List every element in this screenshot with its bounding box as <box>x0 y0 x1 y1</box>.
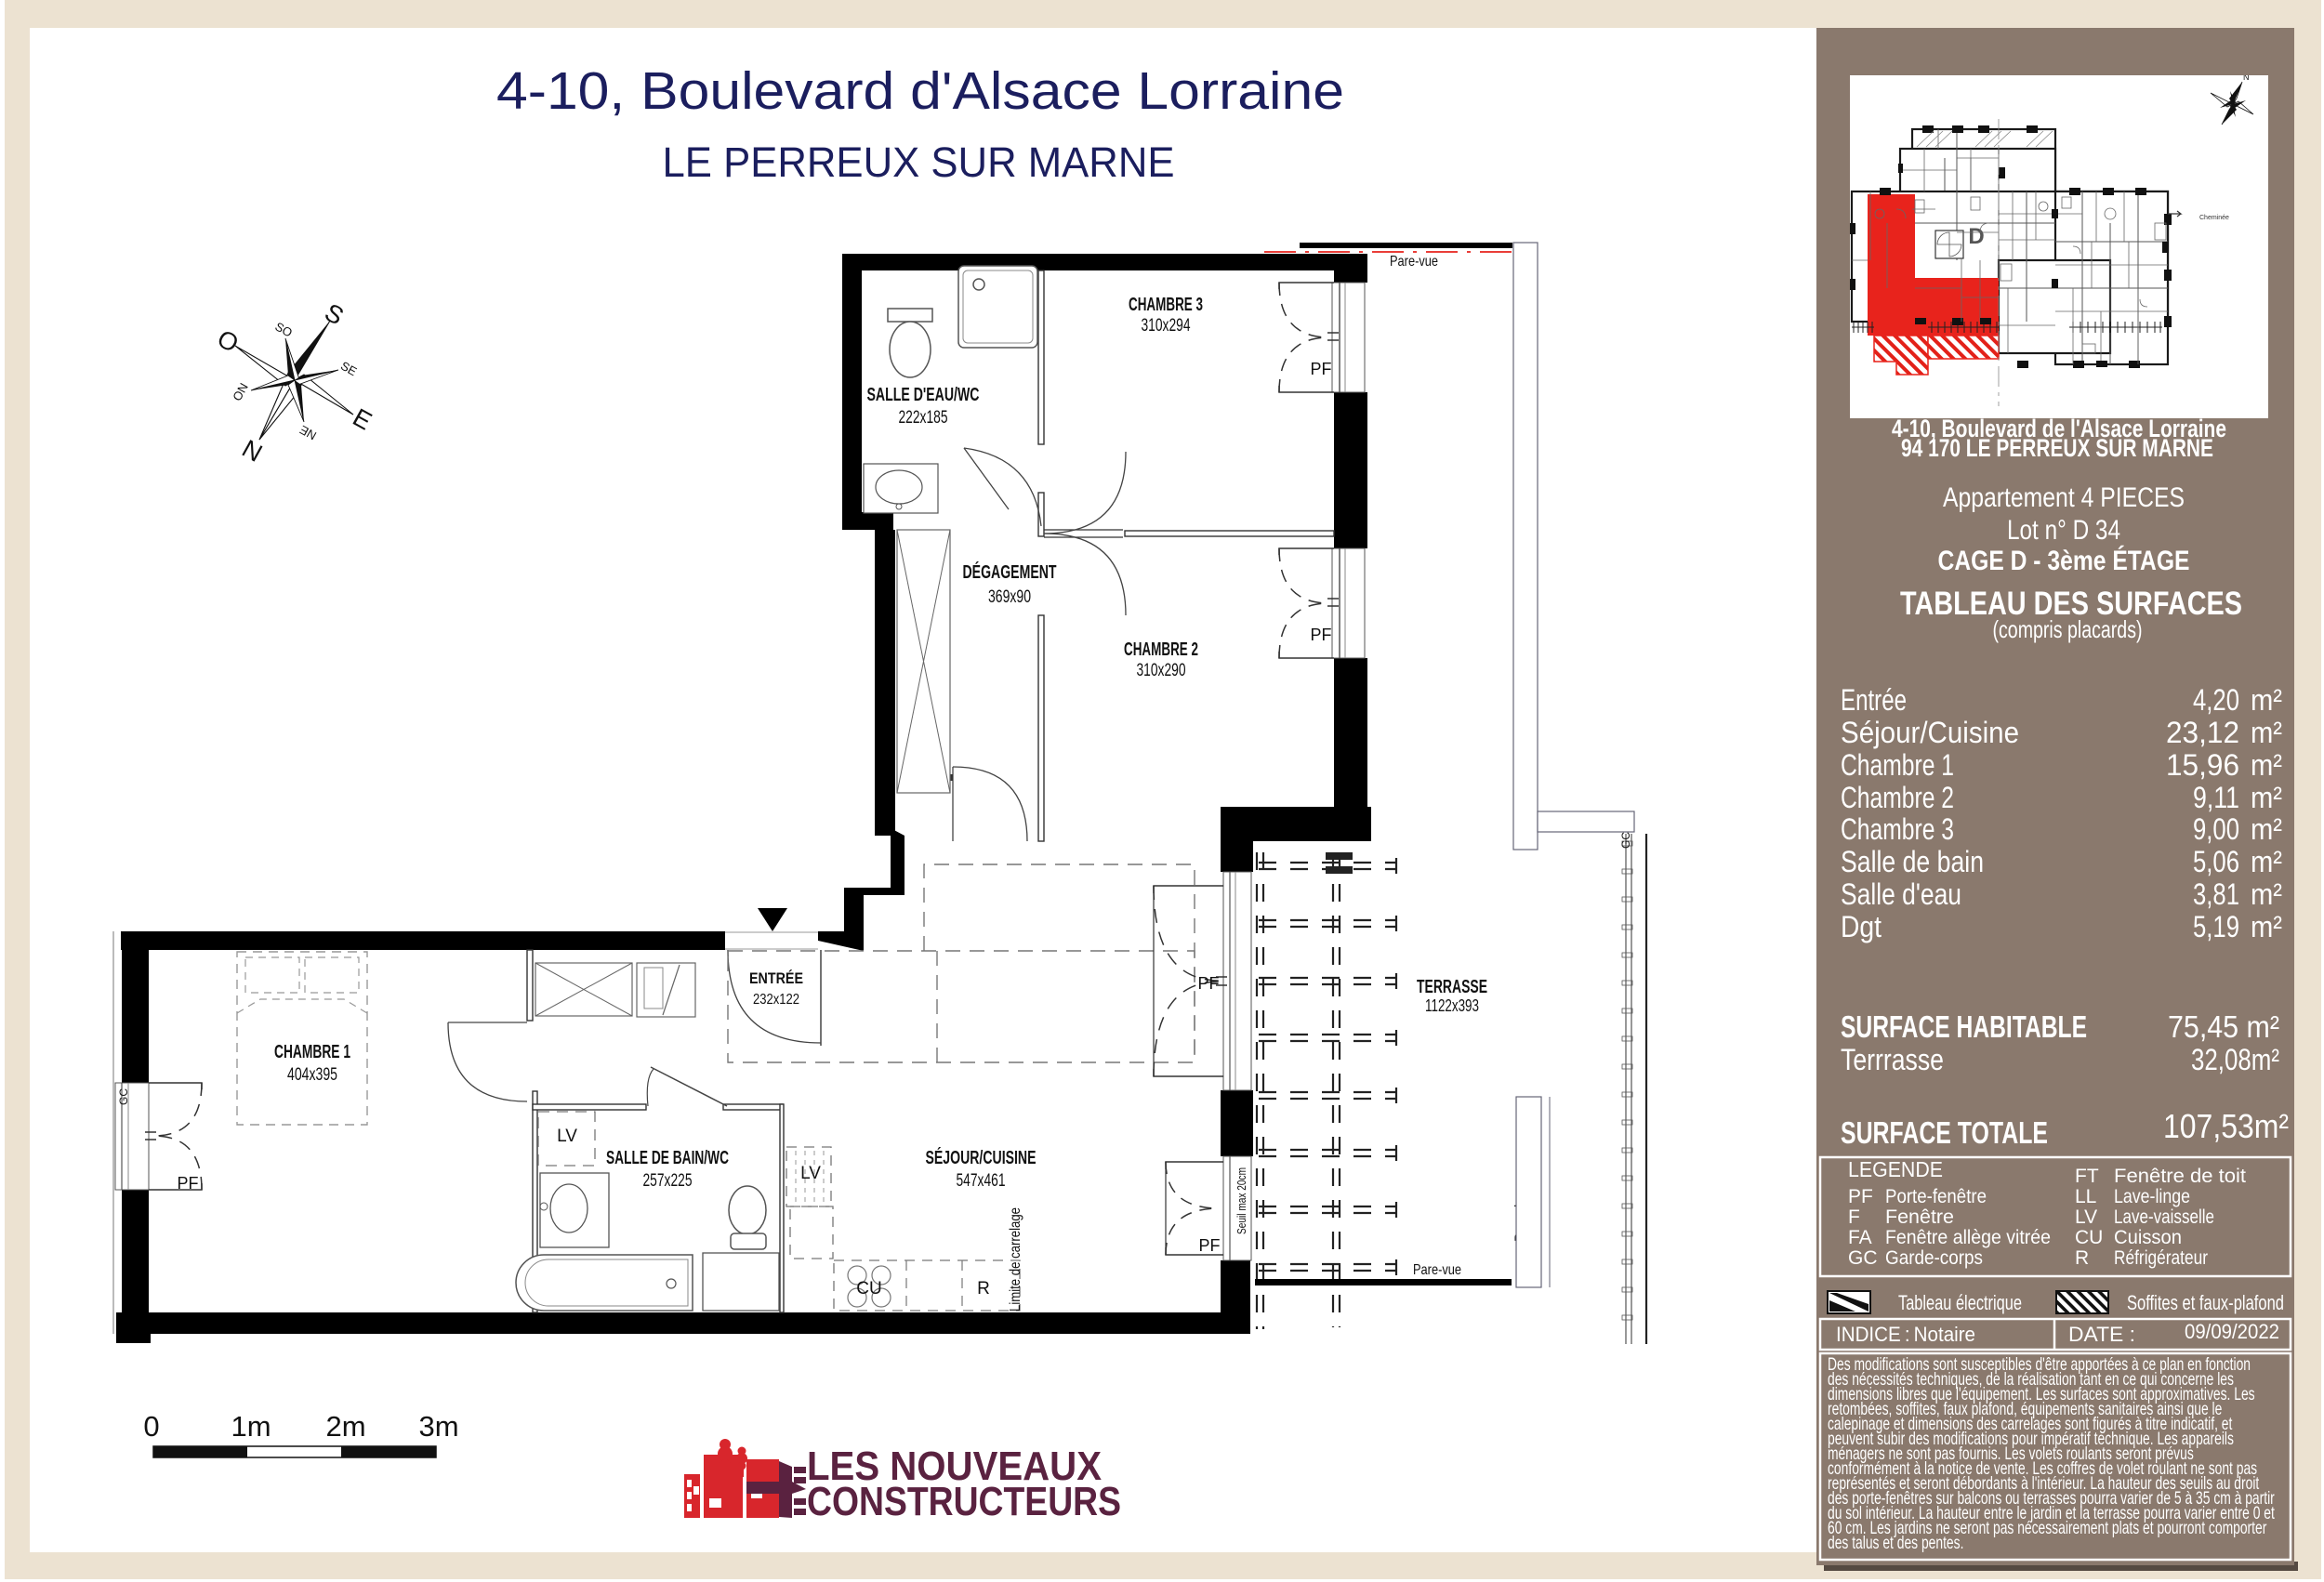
svg-text:SALLE DE BAIN/WC: SALLE DE BAIN/WC <box>606 1148 729 1168</box>
svg-text:CHAMBRE 1: CHAMBRE 1 <box>274 1042 350 1062</box>
svg-text:Tableau électrique: Tableau électrique <box>1898 1291 2022 1314</box>
svg-text:Fenêtre de toit: Fenêtre de toit <box>2114 1166 2246 1187</box>
svg-text:222x185: 222x185 <box>899 408 948 428</box>
svg-text:GC: GC <box>1848 1247 1878 1269</box>
svg-text:369x90: 369x90 <box>988 587 1031 607</box>
svg-text:m²: m² <box>2251 683 2282 717</box>
svg-text:m²: m² <box>2251 781 2282 814</box>
svg-text:23,12: 23,12 <box>2166 716 2239 749</box>
svg-text:PF: PF <box>1310 626 1331 644</box>
svg-text:R: R <box>977 1279 990 1299</box>
svg-text:404x395: 404x395 <box>287 1065 337 1085</box>
svg-text:LE PERREUX SUR MARNE: LE PERREUX SUR MARNE <box>663 138 1175 186</box>
svg-text:Cheminée: Cheminée <box>2199 215 2229 221</box>
svg-text:9,00: 9,00 <box>2193 812 2239 846</box>
svg-text:Réfrigérateur: Réfrigérateur <box>2114 1247 2208 1269</box>
svg-text:PF: PF <box>1848 1186 1873 1207</box>
svg-text:LL: LL <box>2075 1186 2096 1207</box>
svg-text:Lot n° D 34: Lot n° D 34 <box>2007 515 2120 546</box>
svg-text:09/09/2022: 09/09/2022 <box>2185 1320 2279 1343</box>
svg-text:257x225: 257x225 <box>643 1171 693 1191</box>
svg-text:32,08m²: 32,08m² <box>2191 1043 2279 1076</box>
svg-text:SÉJOUR/CUISINE: SÉJOUR/CUISINE <box>926 1147 1037 1168</box>
svg-text:LEGENDE: LEGENDE <box>1848 1157 1943 1181</box>
svg-text:4-10, Boulevard d'Alsace Lorra: 4-10, Boulevard d'Alsace Lorraine <box>496 61 1344 121</box>
svg-text:Fenêtre allège vitrée: Fenêtre allège vitrée <box>1885 1227 2051 1248</box>
svg-text:CAGE D - 3ème ÉTAGE: CAGE D - 3ème ÉTAGE <box>1938 545 2190 576</box>
svg-text:m²: m² <box>2251 812 2282 846</box>
svg-text:75,45 m²: 75,45 m² <box>2168 1009 2279 1044</box>
svg-text:SALLE D'EAU/WC: SALLE D'EAU/WC <box>867 385 980 405</box>
svg-text:Soffites et faux-plafond: Soffites et faux-plafond <box>2127 1291 2284 1314</box>
svg-text:R: R <box>2075 1247 2089 1269</box>
svg-text:GC: GC <box>117 1088 130 1105</box>
svg-text:m²: m² <box>2251 748 2282 782</box>
svg-text:Pare-vue: Pare-vue <box>1390 254 1438 270</box>
svg-text:CHAMBRE 2: CHAMBRE 2 <box>1124 639 1198 660</box>
svg-text:m²: m² <box>2251 877 2282 911</box>
svg-text:CONSTRUCTEURS: CONSTRUCTEURS <box>807 1479 1121 1524</box>
svg-text:Entrée: Entrée <box>1841 683 1907 717</box>
svg-text:SURFACE TOTALE: SURFACE TOTALE <box>1841 1115 2048 1150</box>
svg-text:Séjour/Cuisine: Séjour/Cuisine <box>1841 716 2019 749</box>
svg-text:310x290: 310x290 <box>1137 661 1186 680</box>
svg-text:Salle de bain: Salle de bain <box>1841 845 1984 878</box>
svg-text:Cuisson: Cuisson <box>2114 1227 2182 1248</box>
svg-text:CU: CU <box>2075 1227 2103 1248</box>
svg-text:1122x393: 1122x393 <box>1425 996 1479 1015</box>
svg-text:Fenêtre: Fenêtre <box>1885 1206 1954 1228</box>
svg-text:3,81: 3,81 <box>2193 877 2239 911</box>
svg-text:FT: FT <box>2075 1166 2099 1187</box>
svg-text:GC: GC <box>1619 832 1632 849</box>
svg-text:Lave-linge: Lave-linge <box>2114 1186 2190 1207</box>
svg-text:PF: PF <box>1198 1236 1220 1255</box>
svg-text:CU: CU <box>856 1279 881 1299</box>
svg-text:2m: 2m <box>325 1410 365 1443</box>
svg-text:4,20: 4,20 <box>2193 683 2239 717</box>
svg-text:INDICE : Notaire: INDICE : Notaire <box>1836 1323 1975 1346</box>
svg-text:94 170 LE PERREUX SUR MARNE: 94 170 LE PERREUX SUR MARNE <box>1901 434 2213 462</box>
svg-text:DÉGAGEMENT: DÉGAGEMENT <box>963 561 1057 583</box>
svg-text:LV: LV <box>2075 1206 2097 1228</box>
svg-text:Garde-corps: Garde-corps <box>1885 1247 1983 1269</box>
svg-text:9,11: 9,11 <box>2193 781 2239 814</box>
svg-text:D: D <box>1968 224 1984 249</box>
svg-text:CHAMBRE 3: CHAMBRE 3 <box>1129 295 1203 315</box>
svg-text:5,19: 5,19 <box>2193 910 2239 943</box>
svg-text:547x461: 547x461 <box>957 1171 1006 1191</box>
svg-text:Seuil max 20cm: Seuil max 20cm <box>1235 1167 1248 1234</box>
svg-text:15,96: 15,96 <box>2166 748 2239 782</box>
svg-text:ENTRÉE: ENTRÉE <box>749 969 803 987</box>
svg-text:Lave-vaisselle: Lave-vaisselle <box>2114 1206 2214 1228</box>
svg-text:Appartement 4 PIECES: Appartement 4 PIECES <box>1943 482 2185 513</box>
svg-text:1m: 1m <box>231 1410 271 1443</box>
svg-text:LV: LV <box>800 1164 821 1183</box>
svg-text:Chambre 3: Chambre 3 <box>1841 812 1954 846</box>
svg-text:PF: PF <box>1310 360 1331 378</box>
svg-text:PF: PF <box>177 1174 198 1193</box>
svg-text:m²: m² <box>2251 716 2282 749</box>
svg-text:Pare-vue: Pare-vue <box>1413 1262 1461 1278</box>
svg-text:TERRASSE: TERRASSE <box>1417 977 1487 997</box>
svg-text:DATE :: DATE : <box>2068 1323 2135 1346</box>
svg-text:0: 0 <box>143 1410 159 1443</box>
svg-text:LV: LV <box>557 1127 577 1146</box>
svg-text:Limite de carrelage: Limite de carrelage <box>1008 1207 1023 1312</box>
svg-text:Porte-fenêtre: Porte-fenêtre <box>1885 1186 1987 1207</box>
svg-text:Terrrasse: Terrrasse <box>1841 1043 1944 1076</box>
svg-text:Salle d'eau: Salle d'eau <box>1841 877 1961 911</box>
svg-text:m²: m² <box>2251 910 2282 943</box>
svg-text:5,06: 5,06 <box>2193 845 2239 878</box>
svg-text:107,53m²: 107,53m² <box>2163 1107 2289 1145</box>
svg-text:des talus et des pentes.: des talus et des pentes. <box>1828 1533 1963 1553</box>
svg-text:SURFACE HABITABLE: SURFACE HABITABLE <box>1841 1009 2087 1044</box>
svg-text:3m: 3m <box>418 1410 458 1443</box>
svg-text:Dgt: Dgt <box>1841 910 1882 943</box>
svg-text:FA: FA <box>1848 1227 1872 1248</box>
svg-text:310x294: 310x294 <box>1142 316 1191 336</box>
svg-text:(compris placards): (compris placards) <box>1993 615 2143 643</box>
svg-text:m²: m² <box>2251 845 2282 878</box>
svg-text:Chambre 1: Chambre 1 <box>1841 748 1954 782</box>
svg-text:232x122: 232x122 <box>753 992 799 1008</box>
svg-text:F: F <box>1848 1206 1860 1228</box>
svg-text:Chambre 2: Chambre 2 <box>1841 781 1954 814</box>
svg-text:PF: PF <box>1197 974 1219 993</box>
